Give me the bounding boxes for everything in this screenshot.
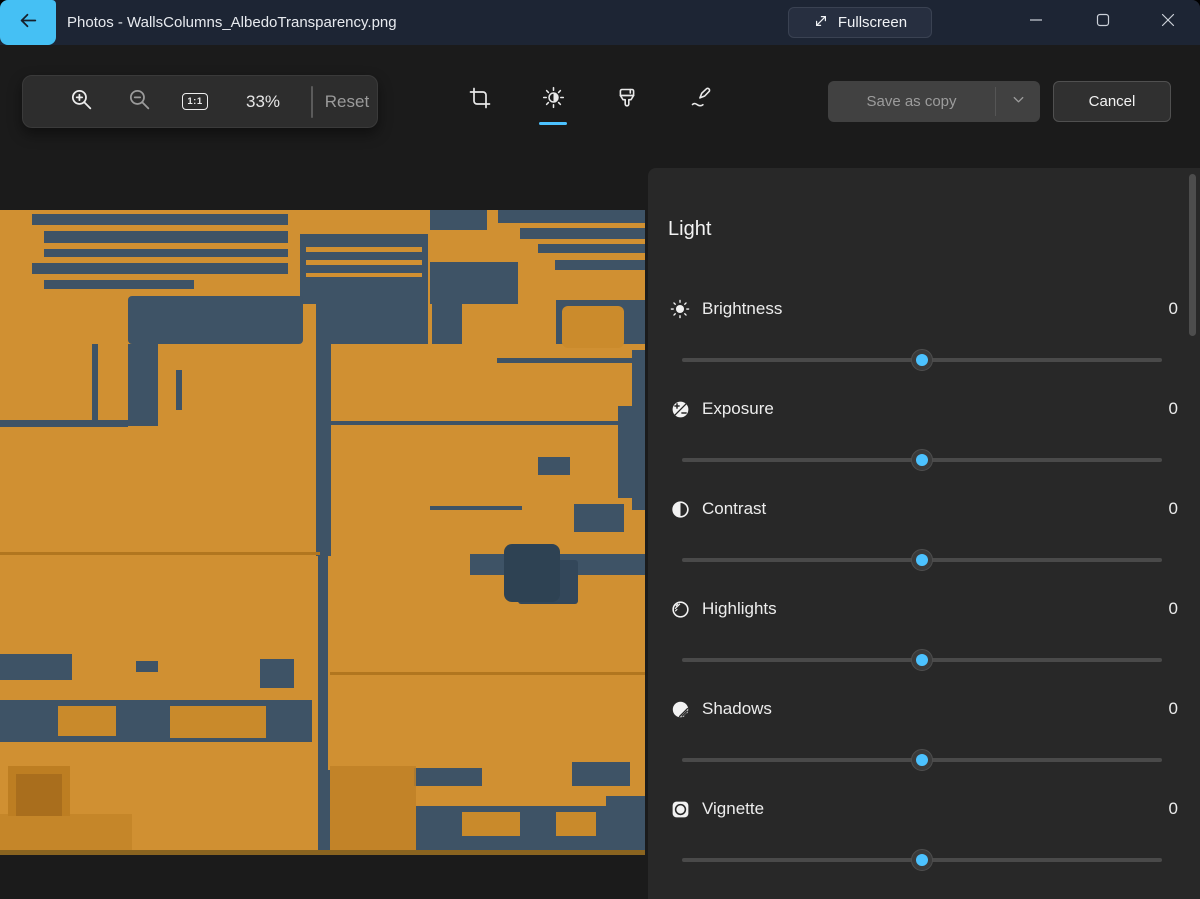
adjustment-value: 0 xyxy=(1169,699,1178,719)
fullscreen-icon xyxy=(813,13,829,33)
panel-heading: Light xyxy=(668,218,711,241)
paintbrush-icon xyxy=(615,86,639,115)
zoom-out-icon xyxy=(127,87,152,117)
adjustment-slider[interactable] xyxy=(682,648,1162,672)
back-arrow-icon xyxy=(18,10,39,36)
adjustment-row: Exposure 0 xyxy=(648,378,1200,478)
cancel-button[interactable]: Cancel xyxy=(1053,81,1171,122)
light-adjustment-tool-button[interactable] xyxy=(530,78,576,122)
zoom-out-button[interactable] xyxy=(111,76,167,127)
adjustment-slider[interactable] xyxy=(682,848,1162,872)
titlebar: Photos - WallsColumns_AlbedoTransparency… xyxy=(0,0,1200,45)
slider-thumb[interactable] xyxy=(911,549,933,571)
zoom-in-icon xyxy=(69,87,94,117)
slider-thumb[interactable] xyxy=(911,349,933,371)
one-to-one-icon: 1:1 xyxy=(182,93,207,110)
minimize-button[interactable] xyxy=(1013,0,1059,45)
adjustment-row: Vignette 0 xyxy=(648,778,1200,878)
adjustment-value: 0 xyxy=(1169,299,1178,319)
adjustment-label: Highlights xyxy=(702,599,777,619)
save-as-copy-button[interactable]: Save as copy xyxy=(828,81,995,122)
chevron-down-icon xyxy=(1011,92,1026,112)
adjustment-value: 0 xyxy=(1169,499,1178,519)
zoom-toolbar: 1:1 33% Reset xyxy=(22,75,378,128)
photo-texture xyxy=(0,210,645,855)
adjustment-label: Shadows xyxy=(702,699,772,719)
fullscreen-label: Fullscreen xyxy=(838,14,907,31)
save-options-dropdown[interactable] xyxy=(996,81,1040,122)
adjustment-value: 0 xyxy=(1169,599,1178,619)
close-button[interactable] xyxy=(1145,0,1191,45)
adjustment-label: Contrast xyxy=(702,499,766,519)
adjustment-label: Vignette xyxy=(702,799,764,819)
adjustment-row: Highlights 0 xyxy=(648,578,1200,678)
crop-icon xyxy=(468,86,492,115)
vignette-icon xyxy=(668,797,692,821)
minimize-icon xyxy=(1026,10,1046,35)
actual-size-button[interactable]: 1:1 xyxy=(169,76,221,127)
zoom-in-button[interactable] xyxy=(53,76,109,127)
markup-tool-button[interactable] xyxy=(678,78,724,122)
exposure-icon xyxy=(668,397,692,421)
adjustment-row: Brightness 0 xyxy=(648,278,1200,378)
contrast-icon xyxy=(668,497,692,521)
maximize-button[interactable] xyxy=(1080,0,1126,45)
brightness-icon xyxy=(668,297,692,321)
filter-tool-button[interactable] xyxy=(604,78,650,122)
save-as-copy-split-button: Save as copy xyxy=(828,81,1040,122)
adjustment-row: Contrast 0 xyxy=(648,478,1200,578)
slider-thumb[interactable] xyxy=(911,849,933,871)
adjustment-slider[interactable] xyxy=(682,748,1162,772)
adjustment-label: Brightness xyxy=(702,299,782,319)
photo-preview xyxy=(0,210,645,855)
adjustment-label: Exposure xyxy=(702,399,774,419)
toolbar-divider xyxy=(311,86,313,118)
adjustment-value: 0 xyxy=(1169,799,1178,819)
shadows-icon xyxy=(668,697,692,721)
selected-tool-indicator xyxy=(539,122,567,125)
adjustment-rows: Brightness 0 Exposure 0 Contrast 0 xyxy=(648,278,1200,878)
adjustment-row: Shadows 0 xyxy=(648,678,1200,778)
back-button[interactable] xyxy=(0,0,56,45)
adjustment-value: 0 xyxy=(1169,399,1178,419)
crop-tool-button[interactable] xyxy=(457,78,503,122)
adjustment-slider[interactable] xyxy=(682,448,1162,472)
fullscreen-button[interactable]: Fullscreen xyxy=(788,7,932,38)
adjustment-slider[interactable] xyxy=(682,548,1162,572)
maximize-icon xyxy=(1093,10,1113,35)
window-title: Photos - WallsColumns_AlbedoTransparency… xyxy=(67,0,397,45)
adjustment-slider[interactable] xyxy=(682,348,1162,372)
slider-thumb[interactable] xyxy=(911,649,933,671)
light-panel: Light Brightness 0 Exposure 0 Contrast 0 xyxy=(648,168,1200,899)
reset-zoom-button[interactable]: Reset xyxy=(319,76,375,127)
zoom-level-value: 33% xyxy=(228,76,298,127)
slider-thumb[interactable] xyxy=(911,449,933,471)
slider-thumb[interactable] xyxy=(911,749,933,771)
close-icon xyxy=(1158,10,1178,35)
highlights-icon xyxy=(668,597,692,621)
pen-icon xyxy=(689,86,713,115)
light-adjustment-icon xyxy=(541,85,566,115)
panel-scrollbar[interactable] xyxy=(1189,174,1196,336)
photos-app-window: Photos - WallsColumns_AlbedoTransparency… xyxy=(0,0,1200,899)
